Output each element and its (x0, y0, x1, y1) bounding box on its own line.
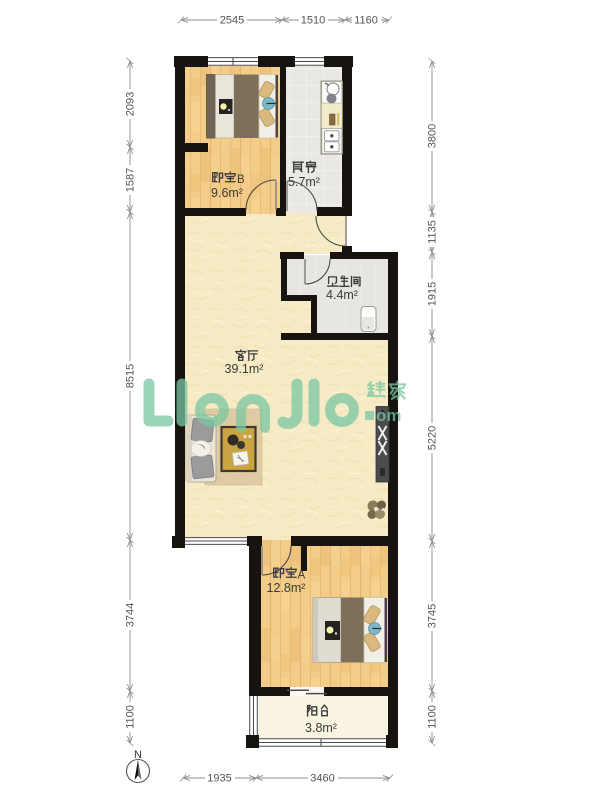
svg-text:1160: 1160 (354, 15, 378, 27)
svg-text:1510: 1510 (301, 15, 325, 27)
svg-text:B: B (237, 174, 245, 186)
svg-text:1935: 1935 (207, 773, 231, 785)
svg-text:om: om (376, 406, 402, 425)
svg-text:1587: 1587 (125, 168, 137, 192)
svg-text:3745: 3745 (427, 604, 439, 628)
svg-text:1915: 1915 (427, 282, 439, 306)
svg-text:1135: 1135 (427, 220, 439, 244)
svg-text:5.7m²: 5.7m² (288, 175, 320, 189)
svg-text:39.1m²: 39.1m² (225, 362, 264, 376)
svg-text:2093: 2093 (125, 92, 137, 116)
svg-text:9.6m²: 9.6m² (211, 186, 243, 200)
svg-text:8515: 8515 (125, 364, 137, 388)
svg-text:12.8m²: 12.8m² (267, 581, 306, 595)
svg-text:3744: 3744 (125, 603, 137, 627)
svg-text:3800: 3800 (427, 124, 439, 148)
svg-text:5220: 5220 (427, 426, 439, 450)
svg-text:A: A (298, 570, 306, 582)
svg-text:2545: 2545 (220, 15, 244, 27)
svg-text:4.4m²: 4.4m² (326, 288, 358, 302)
svg-text:3.8m²: 3.8m² (305, 721, 337, 735)
svg-text:3460: 3460 (310, 773, 334, 785)
svg-text:1100: 1100 (427, 705, 439, 729)
svg-text:1100: 1100 (125, 705, 137, 729)
